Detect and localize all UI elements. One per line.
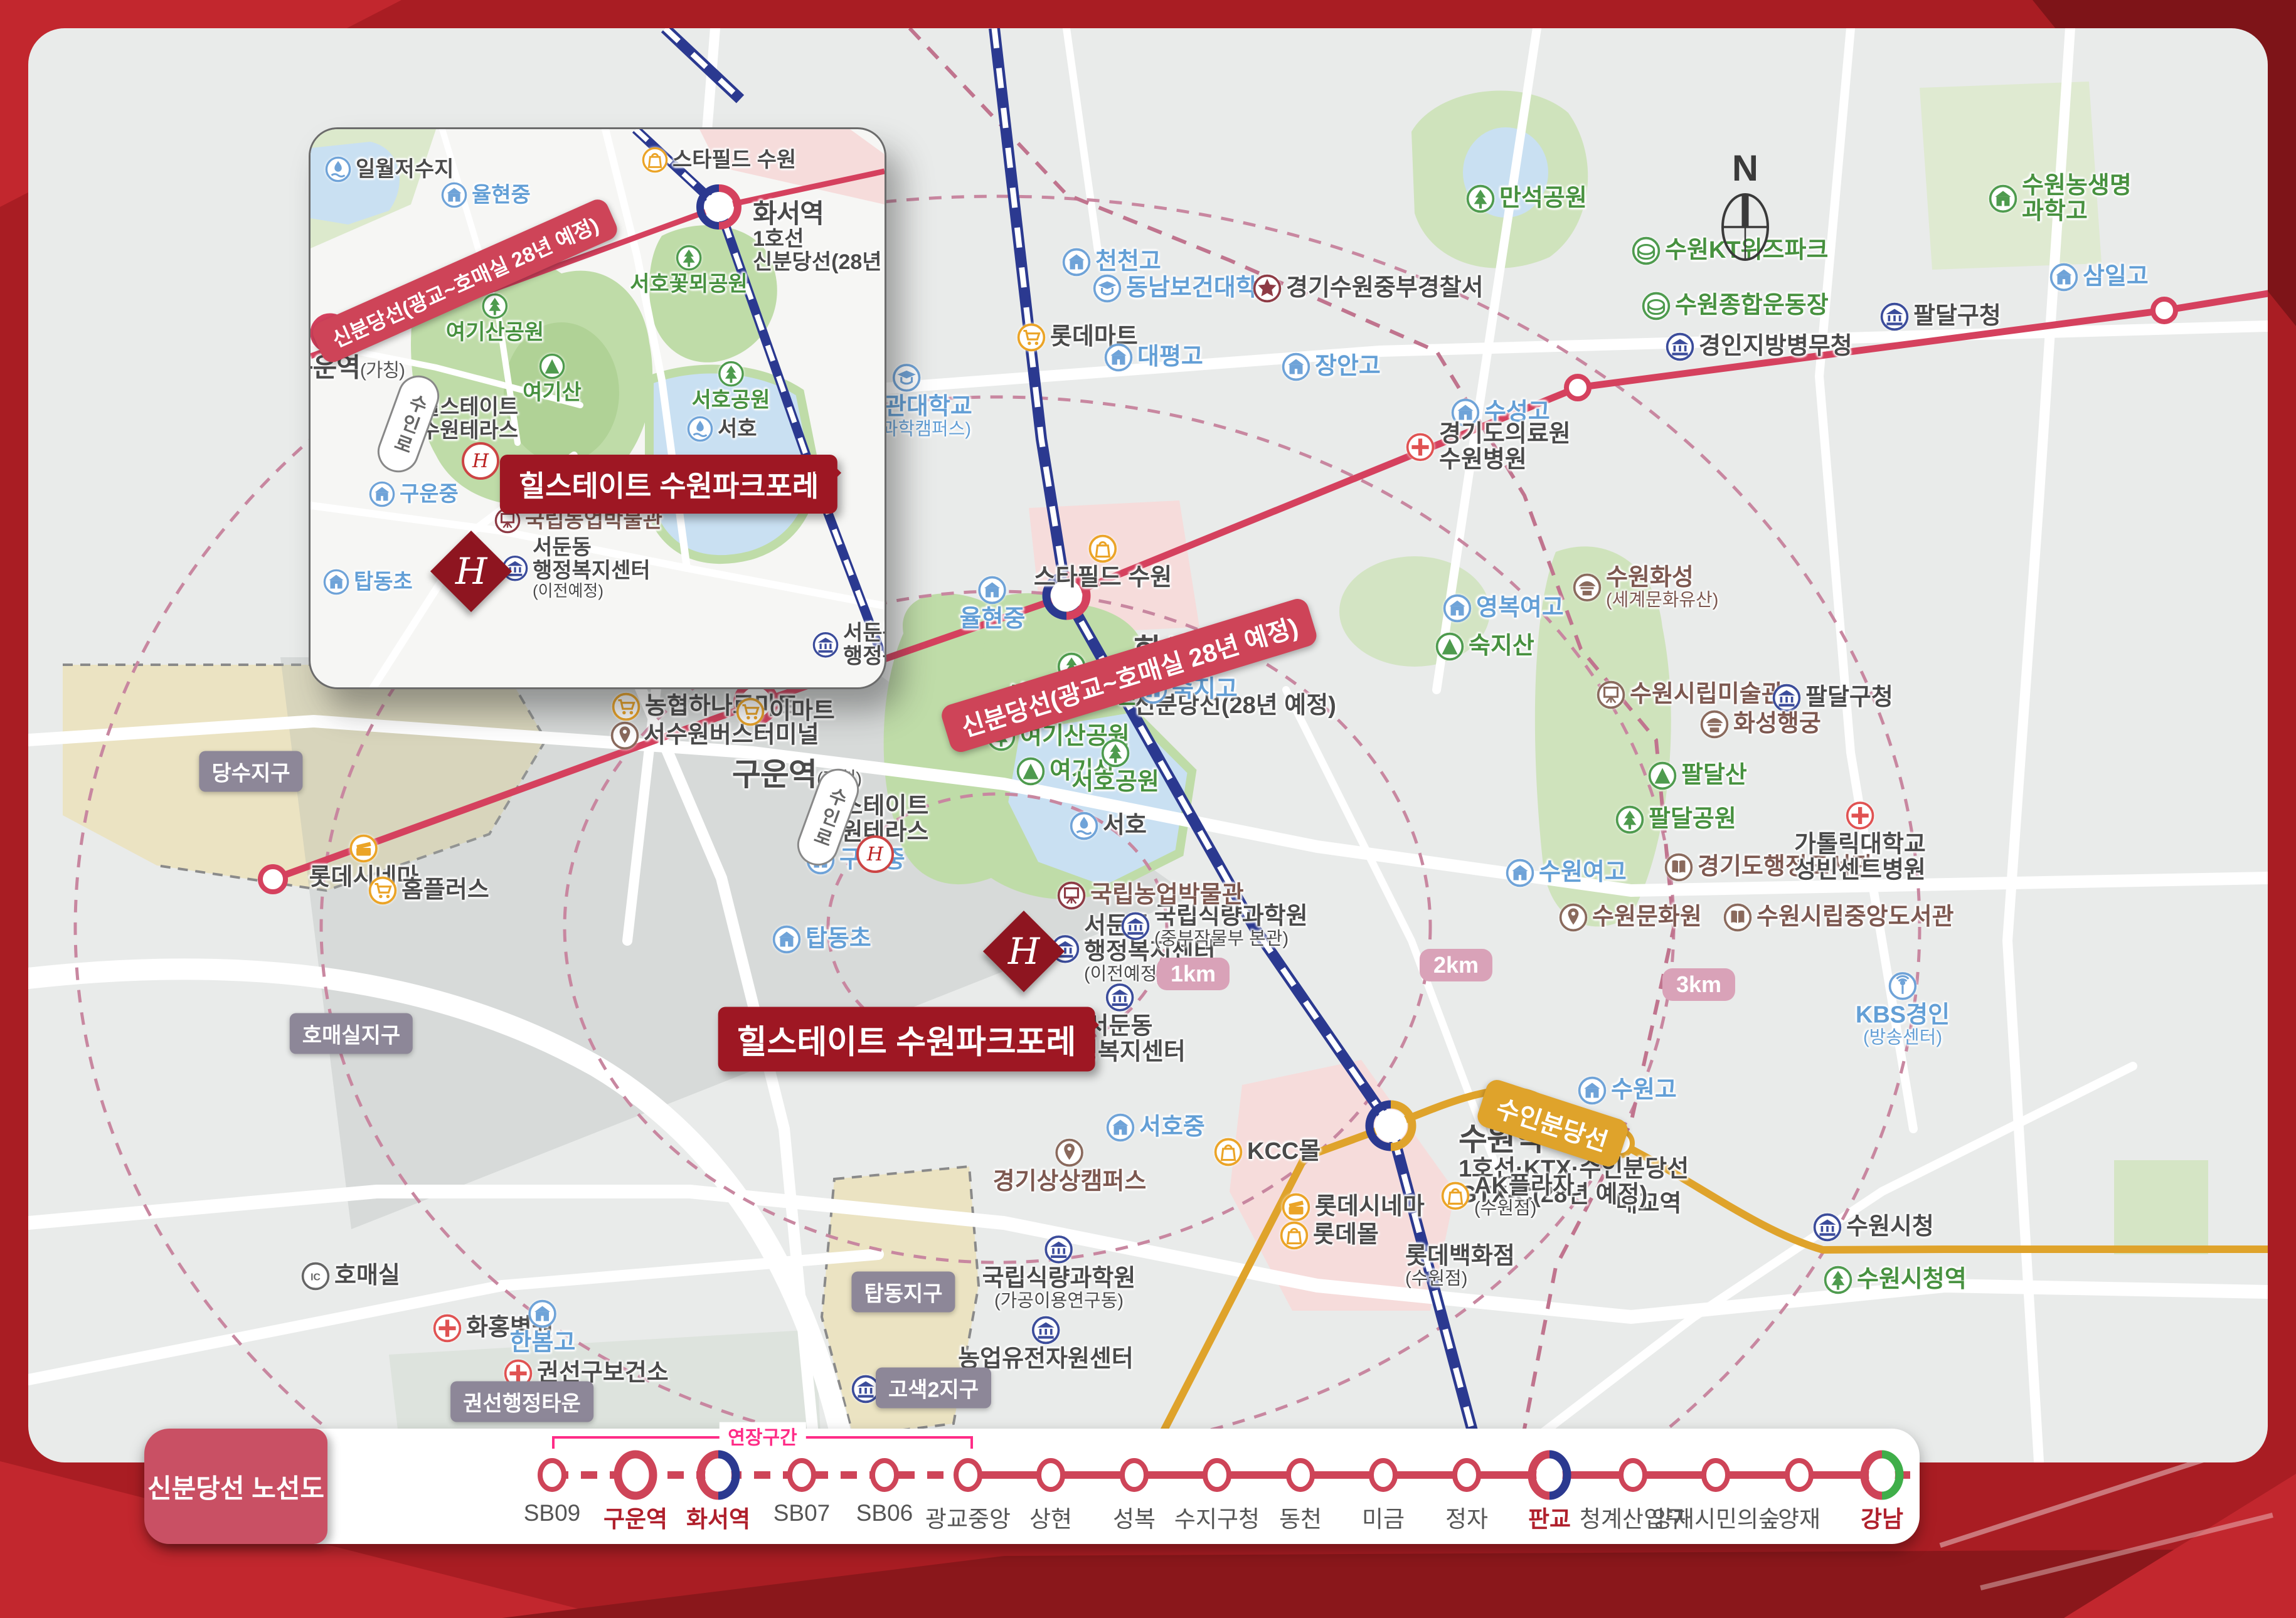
poi-label: 여기산공원 [446,321,544,344]
poi-label: 팔달구청 [1913,304,2001,329]
map-poi: 삼일고 [2049,263,2149,292]
hospital-icon [433,1314,462,1343]
map-poi: 서호 [1070,812,1147,840]
map-poi: 수원종합운동장 [1642,292,1829,320]
map-poi: 가톨릭대학교성빈센트병원 [1794,801,1926,883]
poi-label: 국립농업박물관 [1090,882,1244,908]
hospital-icon [1406,433,1435,462]
map-poi: 경기도의료원수원병원 [1406,421,1571,473]
poi-label: 서호 [718,418,757,441]
poi-label: 삼일고 [2083,264,2149,290]
water-icon [1070,812,1098,840]
cinema-icon [1282,1193,1310,1222]
map-poi: 경인지방병무청 [1666,332,1852,361]
bag-icon [1441,1182,1470,1210]
location-map-poster: 만석공원수원KT위즈파크수원종합운동장수원농생명과학고삼일고팔달구청천천고동남보… [0,0,2296,1618]
poi-label: 롯데백화점(수원점) [1405,1244,1515,1289]
poi-label: 숙지산 [1469,633,1534,659]
map-poi: 수원화성(세계문화유산) [1573,565,1718,610]
map-poi: 화서역1호선신분당선(28년 예정) [753,199,886,274]
tree-icon [1466,184,1495,213]
map-poi: 일월저수지 [325,156,454,182]
district-badge: 호매실지구 [290,1013,413,1054]
route-station: 성복 [1113,1500,1156,1534]
poi-label: 율현중 [960,606,1026,632]
gov-icon [1105,983,1134,1012]
map-poi: 수원시립중앙도서관 [1723,903,1954,932]
poi-label: 수원고 [1611,1077,1677,1103]
map-poi: 탑동초 [323,569,413,595]
map-poi: 대평고 [1104,343,1203,372]
poi-label: 서둔동행정복지센터(이전예정) [533,536,651,600]
school-icon [1506,859,1534,887]
district-badge: 권선행정타운 [450,1382,593,1422]
poi-label: 수원시립미술관 [1630,682,1783,707]
map-poi: 스타필드 수원 [642,147,796,173]
museum-icon [1597,680,1625,709]
poi-label: 구운중 [400,483,459,506]
tree-icon [1615,805,1644,834]
map-poi: 숙지산 [1435,632,1534,661]
poi-label: 서호중 [1139,1114,1205,1140]
poi-label: 영복여고 [1476,595,1564,621]
map-poi: 수원시청 [1813,1213,1934,1242]
map-poi: 이마트 [736,697,835,726]
poi-label: 서수원버스터미널 [644,722,819,748]
poi-label: KCC몰 [1247,1139,1321,1165]
map-poi: 탑동초 [772,925,871,954]
stadium-icon [1642,292,1671,320]
route-station: SB06 [856,1500,913,1526]
poi-label: 국립식량과학원(가공이용연구동) [982,1266,1136,1311]
extension-bracket: 연장구간 [552,1436,973,1449]
compass-icon: N [1717,147,1773,268]
map-poi: 여기산 [523,353,582,404]
map-poi: KBS경인(방송센터) [1856,971,1950,1047]
route-station: 강남 [1861,1500,1903,1534]
map-poi: 홈플러스 [368,876,489,905]
poi-label: 경기도의료원수원병원 [1439,421,1571,473]
map-poi: 롯데백화점(수원점) [1405,1244,1515,1289]
poi-label: 한봄고 [510,1330,576,1356]
poi-label: 경인지방병무청 [1699,334,1852,359]
district-badge: 탑동지구 [851,1272,955,1313]
tree-icon [1101,739,1130,768]
gov-icon [812,632,839,658]
map-poi: 수원시립미술관 [1597,680,1783,709]
poi-label: 경기수원중부경찰서 [1286,275,1484,301]
gov-icon [1880,302,1909,331]
map-poi: 만석공원 [1466,184,1587,213]
poi-label: 서호공원 [691,389,770,412]
water-icon [325,156,351,182]
route-title-badge: 신분당선 노선도 [144,1429,327,1544]
poi-label: 수원시청 [1846,1214,1934,1240]
cart-icon [736,697,765,726]
map-poi: 서호공원 [691,361,770,412]
school-icon [1282,352,1310,381]
map-poi: 서호꽃뫼공원 [630,245,748,296]
poi-label: 수원종합운동장 [1675,293,1829,319]
palace-icon [1700,710,1729,739]
map-poi: 롯데시네마 [1282,1193,1425,1222]
poi-label: 대평고 [1137,344,1203,370]
map-poi: 국립농업박물관 [1057,881,1244,910]
school-icon [1989,184,2017,213]
map-poi: 서둔동행정복지센터 [812,621,886,667]
poi-label: 서호공원 [1071,769,1159,795]
mountain-icon [1435,632,1464,661]
poi-label: 화성행궁 [1733,711,1821,737]
route-station: 양재시민의숲 [1652,1500,1780,1534]
poi-label: 수원여고 [1539,860,1627,886]
route-station: 수지구청 [1174,1500,1260,1534]
svg-text:IC: IC [311,1272,321,1282]
map-poi: 팔달산 [1648,761,1747,790]
map-poi: AK플라자(수원점) [1441,1173,1575,1219]
hillstate-logo-icon: H [462,442,499,480]
route-station: 구운역 [603,1500,667,1534]
inset-map: 일월저수지율현중스타필드 수원화서역1호선신분당선(28년 예정)구운역(가칭)… [309,127,886,689]
map-poi: 수원시청역 [1824,1266,1967,1294]
route-station: 판교 [1528,1500,1571,1534]
poi-label: AK플라자(수원점) [1474,1173,1575,1219]
gov-icon [1666,332,1694,361]
route-station: 동천 [1279,1500,1322,1534]
mountain-icon [1016,757,1045,786]
district-badge: 고색2지구 [876,1368,991,1409]
map-poi: 수원문화원 [1559,903,1702,932]
brand-badge-inset: 힐스테이트 수원파크포레 [500,455,837,514]
cart-icon [1017,323,1046,352]
palace-icon [1573,573,1602,602]
poi-label: 천천고 [1095,249,1161,275]
map-poi: 서호공원 [1071,739,1159,795]
stadium-icon [1632,236,1661,265]
route-station: 화서역 [686,1500,750,1534]
poi-label: 롯데몰 [1313,1222,1379,1248]
poi-label: 이마트 [769,699,835,724]
map-poi: 장안고 [1282,352,1381,381]
poi-label: 서호꽃뫼공원 [630,273,748,296]
extension-label: 연장구간 [719,1422,805,1450]
frame-corner-bottom-right [2064,1474,2296,1618]
gov-icon [1813,1213,1842,1242]
pin-icon [1055,1138,1084,1167]
tree-icon [482,293,508,319]
district-badge: 당수지구 [199,751,302,792]
poi-label: 가톨릭대학교성빈센트병원 [1794,832,1926,883]
poi-label: 스타필드 수원 [672,149,796,172]
poi-label: 수원시립중앙도서관 [1757,904,1954,930]
police-icon [1253,274,1282,303]
map-poi: 경기상상캠퍼스 [993,1138,1147,1195]
map-poi: 화성행궁 [1700,710,1821,739]
poi-label: 서둔동행정복지센터 [843,621,886,667]
map-poi: 한봄고 [510,1299,576,1356]
map-poi: 율현중 [960,576,1026,632]
route-station: 광교중앙 [925,1500,1011,1534]
poi-label: 만석공원 [1499,186,1587,211]
tree-icon [718,361,744,387]
bag-icon [642,147,668,173]
map-poi: 국립식량과학원(중부작물부 본관) [1121,904,1308,949]
mountain-icon [539,353,565,379]
pin-icon [610,721,639,750]
gov-icon [1044,1235,1073,1264]
poi-label: 여기산 [523,381,582,404]
map-poi: 수원농생명과학고 [1989,173,2132,225]
map-poi: KCC몰 [1214,1138,1321,1166]
map-poi: 수원여고 [1506,859,1627,887]
mountain-icon [1648,761,1677,790]
map-poi: 영복여고 [1443,594,1564,623]
route-station: SB07 [773,1500,831,1526]
map-poi: 스타필드 수원 [1034,534,1172,591]
book-icon [1664,853,1693,882]
college-icon [1093,274,1122,303]
museum-icon [1057,881,1086,910]
school-icon [772,925,801,954]
water-icon [687,416,713,442]
map-poi: 천천고 [1062,248,1161,277]
compass-n-label: N [1717,147,1773,189]
map-poi: 서둔동행정복지센터(이전예정) [502,536,651,600]
school-icon [1443,594,1472,623]
poi-label: 수원문화원 [1592,904,1702,930]
map-poi: 팔달구청 [1880,302,2001,331]
cinema-icon [349,834,378,863]
map-poi: 수원고 [1578,1076,1677,1105]
poi-label: 스타필드 수원 [1034,565,1172,591]
poi-label: KBS경인(방송센터) [1856,1002,1950,1047]
bag-icon [1280,1221,1309,1250]
school-icon [2049,263,2078,292]
route-station: 양재 [1778,1500,1820,1534]
poi-label: 탑동초 [805,926,871,952]
college-icon [892,363,921,392]
map-poi: 경기수원중부경찰서 [1253,274,1484,303]
poi-label: 호매실 [334,1263,400,1289]
map-poi: 서호 [687,416,757,442]
map-poi: 동남보건대학교 [1093,274,1280,303]
school-icon [1578,1076,1607,1105]
gov-icon [1031,1316,1060,1345]
poi-label: 화서역1호선신분당선(28년 예정) [753,199,886,274]
poi-label: 수원화성(세계문화유산) [1606,565,1718,610]
school-icon [323,569,349,595]
poi-label: 팔달공원 [1649,806,1736,832]
poi-label: 서호 [1103,813,1147,838]
school-icon [1104,343,1133,372]
map-poi: 국립식량과학원(가공이용연구동) [982,1235,1136,1311]
school-icon [528,1299,557,1328]
cart-icon [612,692,640,721]
route-station: 상현 [1029,1500,1072,1534]
distance-badge: 1km [1157,958,1230,990]
map-area: 만석공원수원KT위즈파크수원종합운동장수원농생명과학고삼일고팔달구청천천고동남보… [28,28,2268,1462]
route-station: 미금 [1362,1500,1405,1534]
map-poi: 팔달구청 [1772,684,1893,712]
tree-icon [676,245,702,271]
map-poi: 율현중 [441,182,531,208]
frame-band-bottom [502,1549,2296,1618]
map-poi: 구운중 [369,481,459,507]
map-poi: 롯데몰 [1280,1221,1379,1250]
map-poi: IC호매실 [301,1262,400,1291]
cart-icon [368,876,397,905]
poi-label: 경기상상캠퍼스 [993,1169,1147,1195]
route-station: 정자 [1445,1500,1488,1534]
school-icon [1062,248,1091,277]
frame-streak [1980,1513,2273,1590]
poi-label: 일월저수지 [356,158,454,181]
gov-icon [1772,684,1801,712]
map-poi: 팔달공원 [1615,805,1736,834]
brand-badge-main: 힐스테이트 수원파크포레 [718,1007,1095,1072]
hillstate-logo-icon: H [856,835,894,873]
poi-label: 탑동초 [354,571,413,594]
school-icon [978,576,1007,605]
school-icon [441,182,467,208]
pin-icon [1559,903,1588,932]
tree-icon [1824,1266,1852,1294]
bag-icon [1214,1138,1243,1166]
poi-label: 롯데시네마 [1315,1194,1425,1220]
map-poi: 농업유전자원센터 [958,1316,1134,1372]
gov-icon [1121,912,1150,941]
poi-label: 수원시청역 [1857,1267,1967,1293]
poi-label: 홈플러스 [401,877,489,903]
poi-label: 국립식량과학원(중부작물부 본관) [1154,904,1308,949]
poi-label: 수원농생명과학고 [2022,173,2132,225]
distance-badge: 3km [1662,968,1735,1001]
poi-label: 장안고 [1315,354,1381,379]
bag-icon [1088,534,1117,563]
broadcast-icon [1888,971,1917,1000]
distance-badge: 2km [1420,949,1492,981]
poi-label: 팔달구청 [1805,685,1893,711]
school-icon [369,481,395,507]
poi-label: 율현중 [472,184,531,207]
route-station: SB09 [524,1500,581,1526]
poi-label: 팔달산 [1681,763,1747,788]
book-icon [1723,903,1752,932]
hospital-icon [1846,801,1874,830]
ic-icon: IC [301,1262,330,1291]
